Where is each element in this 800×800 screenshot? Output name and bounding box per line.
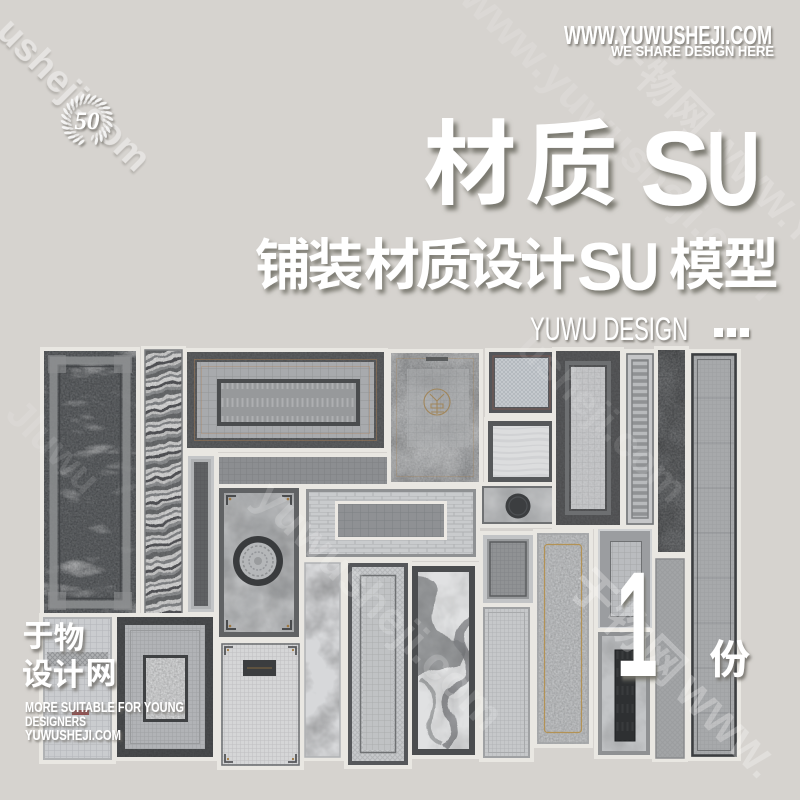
svg-text:S: S bbox=[640, 110, 711, 228]
svg-text:YUWU DESIGN: YUWU DESIGN bbox=[530, 311, 688, 347]
svg-text:WE SHARE DESIGN HERE: WE SHARE DESIGN HERE bbox=[611, 44, 774, 60]
svg-text:YUWUSHEJI.COM: YUWUSHEJI.COM bbox=[25, 728, 121, 744]
svg-text:U: U bbox=[706, 110, 760, 228]
svg-text:S: S bbox=[577, 229, 622, 305]
svg-text:U: U bbox=[619, 230, 659, 305]
svg-text:usheji.com: usheji.com bbox=[0, 10, 159, 180]
svg-text:50: 50 bbox=[75, 108, 101, 135]
svg-text:DESIGNERS: DESIGNERS bbox=[25, 714, 86, 729]
svg-text:1: 1 bbox=[616, 542, 658, 709]
